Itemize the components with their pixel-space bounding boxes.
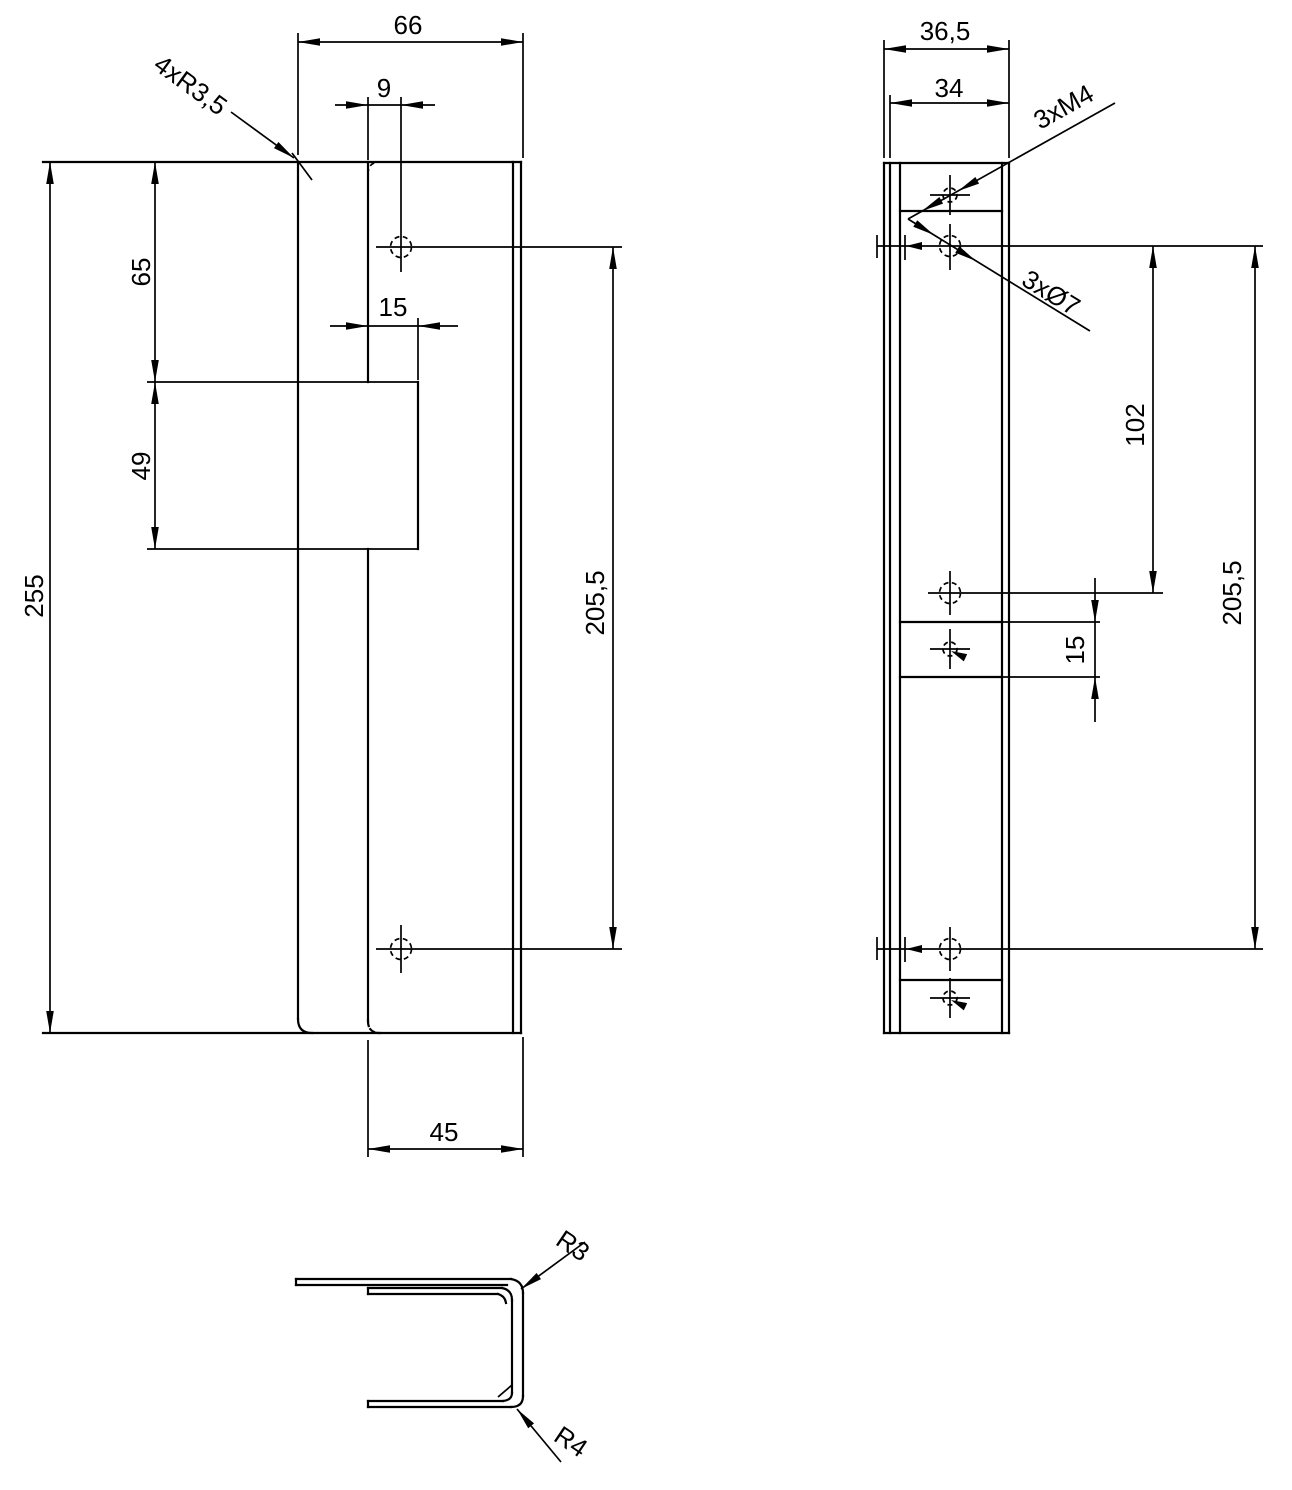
dim-inner-depth: 34 [890,73,1009,158]
front-holes [376,97,622,973]
bracket-drawing: 66 9 15 65 49 [0,0,1292,1490]
dim-hole-spacing-side-label: 205,5 [1217,560,1247,625]
dim-total-width: 66 [298,10,523,158]
dim-top-section-height-label: 65 [126,258,156,287]
dim-notch-depth: 15 [330,292,458,380]
dim-slot-height-label: 15 [1060,636,1090,665]
callout-bottom-bend-radius-label: R4 [549,1420,593,1463]
side-centerline-extensions [877,235,1263,962]
dim-outer-depth-label: 36,5 [920,16,971,46]
dim-notch-height-label: 49 [126,452,156,481]
dim-notch-depth-label: 15 [379,292,408,322]
front-view: 66 9 15 65 49 [19,10,622,1157]
callout-through-holes: 3xØ7 [908,219,1090,331]
callout-through-holes-label: 3xØ7 [1017,264,1086,322]
section-outline [296,1279,523,1407]
dim-hole-offset: 9 [335,73,435,160]
callout-bottom-bend-radius: R4 [514,1407,593,1464]
side-holes [930,175,970,1018]
dim-slot-height: 15 [1002,578,1100,722]
dim-upper-hole-spacing: 102 [1120,246,1157,593]
callout-top-bend-radius-label: R3 [551,1224,595,1267]
side-view: 36,5 34 3xM4 3xØ7 102 [877,16,1263,1033]
dim-total-height-label: 255 [19,574,49,617]
dim-hole-spacing-front-label: 205,5 [580,570,610,635]
technical-drawing-page: 66 9 15 65 49 [0,0,1292,1490]
dim-top-section-height: 65 [126,162,159,382]
section-view: R3 R4 [296,1224,595,1463]
dim-hole-spacing-side: 205,5 [1217,246,1259,949]
dim-notch-height: 49 [126,382,159,549]
callout-tapped-holes-label: 3xM4 [1028,78,1098,135]
callout-corner-radius-label: 4xR3,5 [148,49,232,122]
dim-total-height: 255 [19,162,54,1033]
dim-hole-offset-label: 9 [377,73,391,103]
dim-inner-depth-label: 34 [935,73,964,103]
front-outline [43,153,521,1033]
dim-bottom-width-label: 45 [430,1117,459,1147]
dim-total-width-label: 66 [394,10,423,40]
callout-corner-radius: 4xR3,5 [148,49,296,161]
dim-bottom-width: 45 [368,1037,523,1157]
callout-top-bend-radius: R3 [519,1224,595,1292]
dim-hole-spacing-front: 205,5 [580,247,617,949]
side-outline [884,163,1009,1033]
dim-upper-hole-spacing-label: 102 [1120,403,1150,446]
